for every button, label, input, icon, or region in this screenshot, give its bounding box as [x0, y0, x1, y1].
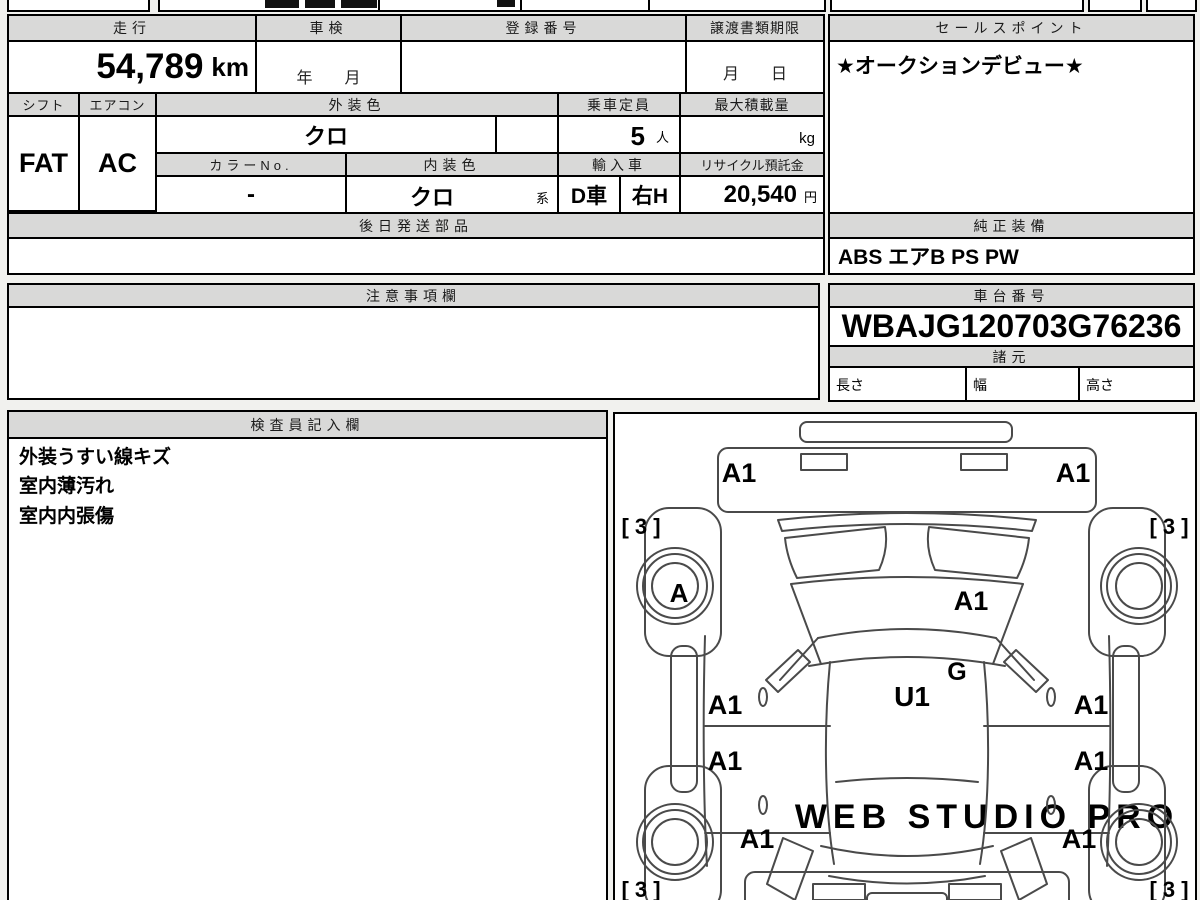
- equipment-value-cell: ABS エアB PS PW: [828, 237, 1195, 275]
- mark-tire-rear-right: [ 3 ]: [1149, 877, 1188, 900]
- exterior-color-sub-cell: [495, 115, 559, 154]
- capacity-value-cell: 5 人: [557, 115, 681, 154]
- chassis-header-label: 車台番号: [974, 286, 1050, 306]
- later-parts-value-cell: [7, 237, 825, 275]
- spec-height-label: 高さ: [1086, 375, 1114, 395]
- import-car-value2-cell: 右H: [619, 175, 681, 214]
- top-cropped-cell-5: [648, 0, 826, 12]
- front-bumper: [718, 448, 1096, 512]
- door-handle-rear-left: [759, 796, 767, 814]
- transfer-deadline-header-label: 譲渡書類期限: [710, 18, 800, 38]
- equipment-header: 純正装備: [828, 212, 1195, 239]
- recycle-deposit-header: リサイクル預託金: [679, 152, 825, 177]
- windshield-base: [809, 657, 1005, 666]
- sales-point-value: ★オークションデビュー★: [830, 42, 1193, 88]
- exterior-color-header-label: 外装色: [329, 95, 386, 115]
- import-car-header-label: 輸入車: [592, 155, 646, 175]
- auction-sheet: 走行 車検 登録番号 譲渡書類期限 54,789km 年 月 月 日 シフト エ…: [0, 0, 1200, 900]
- caution-header: 注意事項欄: [7, 283, 820, 308]
- inspector-note-1: 外装うすい線キズ: [19, 443, 596, 472]
- interior-color-header-label: 内装色: [424, 155, 481, 175]
- top-cropped-cell-8: [1146, 0, 1197, 12]
- mark-tire-front-left: [ 3 ]: [621, 514, 660, 539]
- color-no-header: カラーNo.: [155, 152, 347, 177]
- inspector-header: 検査員記入欄: [7, 410, 608, 439]
- top-cropped-cell-4: [520, 0, 650, 12]
- mark-cowl: G: [947, 658, 966, 686]
- exterior-color-header: 外装色: [155, 92, 559, 117]
- door-handle-front-right: [1047, 688, 1055, 706]
- top-cropped-cell-6: [830, 0, 1084, 12]
- spec-width-label: 幅: [973, 375, 987, 395]
- import-car-header: 輸入車: [557, 152, 681, 177]
- color-no-value: -: [247, 181, 255, 209]
- caution-header-label: 注意事項欄: [366, 286, 461, 306]
- aircon-value-cell: AC: [78, 115, 157, 212]
- aircon-header: エアコン: [78, 92, 157, 117]
- rear-bumper-slot-left: [813, 884, 865, 900]
- later-parts-header-label: 後日発送部品: [359, 216, 473, 236]
- rocker-right: [1113, 646, 1139, 792]
- capacity-unit: 人: [656, 127, 669, 146]
- shaken-header-label: 車検: [310, 18, 348, 38]
- color-no-header-label: カラーNo.: [209, 155, 292, 174]
- shift-value: FAT: [19, 148, 68, 179]
- mark-front-bumper-right: A1: [1056, 458, 1091, 488]
- import-car-value1-cell: D車: [557, 175, 621, 214]
- mileage-unit: km: [211, 52, 249, 83]
- c-pillar-right: [1001, 838, 1047, 900]
- windshield-top: [818, 629, 996, 638]
- rear-bumper-slot-right: [949, 884, 1001, 900]
- mark-roof: U1: [894, 681, 930, 712]
- spec-length-cell: 長さ: [828, 366, 967, 402]
- exterior-color-value: クロ: [304, 119, 348, 151]
- mileage-header-label: 走行: [113, 18, 151, 38]
- shift-header: シフト: [7, 92, 80, 117]
- registration-header: 登録番号: [400, 14, 687, 42]
- import-car-value1: D車: [571, 180, 607, 210]
- roof-rear-line: [836, 778, 978, 782]
- top-cropped-cell-2: [158, 0, 380, 12]
- sales-point-header: セールスポイント: [828, 14, 1195, 42]
- aircon-value: AC: [98, 148, 137, 179]
- top-cropped-cell-1: [7, 0, 150, 12]
- registration-value-cell: [400, 40, 687, 94]
- max-load-value-cell: kg: [679, 115, 825, 154]
- shaken-placeholder: 年 月: [296, 64, 360, 88]
- shaken-value-cell: 年 月: [255, 40, 402, 94]
- max-load-header: 最大積載量: [679, 92, 825, 117]
- import-car-value2: 右H: [632, 180, 668, 210]
- shaken-header: 車検: [255, 14, 402, 42]
- specs-header: 諸元: [828, 345, 1195, 368]
- max-load-unit: kg: [799, 130, 815, 147]
- rear-window: [821, 846, 993, 856]
- equipment-value: ABS エアB PS PW: [838, 241, 1019, 271]
- top-cropped-cell-7: [1088, 0, 1142, 12]
- mark-quarter-left: A1: [740, 824, 775, 854]
- mark-quarter-right: A1: [1062, 824, 1097, 854]
- rear-deck: [829, 876, 985, 884]
- capacity-value: 5: [631, 121, 645, 152]
- chassis-value-cell: WBAJG120703G76236: [828, 306, 1195, 347]
- color-no-value-cell: -: [155, 175, 347, 214]
- headlight-right: [928, 527, 1029, 578]
- rear-bumper: [745, 872, 1069, 900]
- interior-color-header: 内装色: [345, 152, 559, 177]
- sales-point-value-cell: ★オークションデビュー★: [828, 40, 1195, 214]
- mileage-value-cell: 54,789km: [7, 40, 257, 94]
- shift-header-label: シフト: [22, 95, 64, 114]
- recycle-deposit-value: 20,540: [724, 181, 797, 209]
- car-diagram: WEB STUDIO PRO: [615, 414, 1195, 900]
- specs-header-label: 諸元: [993, 347, 1031, 367]
- front-bumper-slot-right: [961, 454, 1007, 470]
- wheel-rear-left: [637, 804, 713, 880]
- spec-length-label: 長さ: [836, 375, 864, 395]
- recycle-deposit-unit: 円: [804, 187, 817, 206]
- mileage-header: 走行: [7, 14, 257, 42]
- mark-door-front-right: A1: [1074, 690, 1109, 720]
- rear-plate: [867, 893, 947, 900]
- sales-point-header-label: セールスポイント: [936, 18, 1088, 38]
- car-diagram-panel: WEB STUDIO PRO: [613, 412, 1197, 900]
- recycle-deposit-value-cell: 20,540 円: [679, 175, 825, 214]
- capacity-header-label: 乗車定員: [587, 95, 651, 115]
- shift-value-cell: FAT: [7, 115, 80, 212]
- chassis-header: 車台番号: [828, 283, 1195, 308]
- interior-color-value: クロ: [347, 180, 517, 212]
- equipment-header-label: 純正装備: [974, 216, 1050, 236]
- transfer-deadline-placeholder: 月 日: [723, 60, 787, 84]
- capacity-header: 乗車定員: [557, 92, 681, 117]
- caution-value-cell: [7, 306, 820, 400]
- registration-header-label: 登録番号: [506, 18, 582, 38]
- inspector-note-3: 室内内張傷: [19, 502, 596, 531]
- mark-door-rear-left: A1: [708, 746, 743, 776]
- mark-hood: A1: [954, 586, 989, 616]
- interior-color-value-cell: クロ 系: [345, 175, 559, 214]
- headlight-left: [785, 527, 886, 578]
- front-plate-strip: [800, 422, 1012, 442]
- inspector-note-2: 室内薄汚れ: [19, 472, 596, 501]
- inspector-notes-cell: 外装うすい線キズ 室内薄汚れ 室内内張傷: [7, 437, 608, 900]
- top-cropped-cell-3: [378, 0, 522, 12]
- mark-front-bumper-left: A1: [722, 458, 757, 488]
- transfer-deadline-header: 譲渡書類期限: [685, 14, 825, 42]
- aircon-header-label: エアコン: [89, 95, 145, 114]
- mileage-value: 54,789: [96, 47, 203, 87]
- chassis-value: WBAJG120703G76236: [842, 308, 1182, 345]
- exterior-color-value-cell: クロ: [155, 115, 497, 154]
- mark-door-front-left: A1: [708, 690, 743, 720]
- transfer-deadline-value-cell: 月 日: [685, 40, 825, 94]
- rocker-left: [671, 646, 697, 792]
- spec-height-cell: 高さ: [1078, 366, 1195, 402]
- max-load-header-label: 最大積載量: [715, 95, 790, 115]
- grille-band: [778, 513, 1036, 531]
- door-handle-front-left: [759, 688, 767, 706]
- mark-door-rear-right: A1: [1074, 746, 1109, 776]
- recycle-deposit-header-label: リサイクル預託金: [700, 155, 803, 174]
- hood-front-edge: [791, 577, 1023, 584]
- later-parts-header: 後日発送部品: [7, 212, 825, 239]
- interior-color-suffix: 系: [536, 188, 549, 207]
- mark-tire-rear-left: [ 3 ]: [621, 877, 660, 900]
- inspector-header-label: 検査員記入欄: [251, 415, 365, 435]
- mark-tire-front-right: [ 3 ]: [1149, 514, 1188, 539]
- mark-wheel-front-left: A: [670, 578, 689, 608]
- spec-width-cell: 幅: [965, 366, 1080, 402]
- front-bumper-slot-left: [801, 454, 847, 470]
